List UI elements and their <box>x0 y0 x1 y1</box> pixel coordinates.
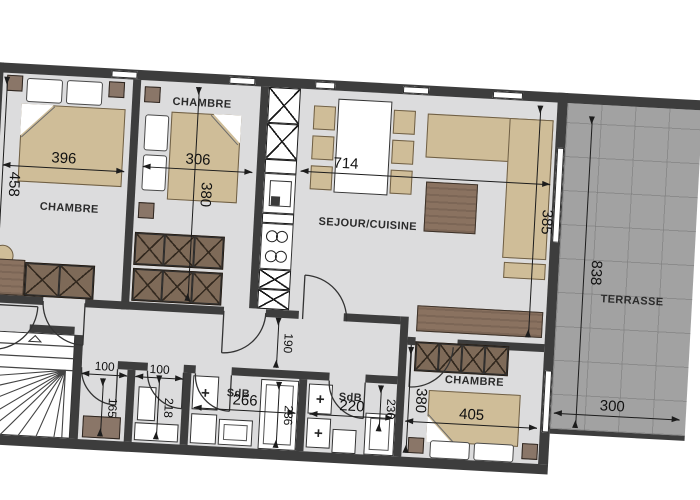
stairs <box>0 330 75 438</box>
dining-chair <box>393 110 416 135</box>
dining-chair <box>310 165 333 190</box>
window-north-3 <box>315 81 335 89</box>
washbasin-sdb1 <box>218 419 253 447</box>
wardrobe-chambre1 <box>23 262 95 300</box>
wardrobe-chambre2-top <box>133 232 225 270</box>
closet2-shelf <box>137 386 157 421</box>
bed-chambre1 <box>18 104 126 188</box>
pillow <box>143 114 169 151</box>
dining-chair <box>391 140 414 165</box>
nightstand <box>108 81 125 98</box>
washbasin-sdb2 <box>331 429 356 454</box>
nightstand <box>407 437 424 454</box>
pillow <box>429 440 470 460</box>
window-north-2 <box>229 76 255 84</box>
window-north-4 <box>403 86 429 94</box>
washer: + <box>306 417 332 448</box>
window-north-1 <box>111 70 137 78</box>
wall-hall-north-a <box>266 309 299 319</box>
dining-chair <box>389 170 412 195</box>
kitchen-tall-cabinet <box>265 123 299 161</box>
kitchen-base-cabinet <box>258 269 291 291</box>
dining-chair <box>311 135 334 160</box>
nightstand <box>138 202 155 219</box>
kitchen-base-cabinet <box>257 289 290 311</box>
sofa-ottoman <box>503 262 546 280</box>
sofa-right <box>502 118 554 260</box>
floor-plan: + + + CHAMBRE CHAMBRE SEJOUR/CUISINE CHA… <box>0 62 700 482</box>
terrace-floor <box>550 103 700 436</box>
wall-corridor-south-e <box>365 375 397 385</box>
pillow <box>66 80 103 106</box>
kitchen-sink <box>262 173 296 215</box>
bathroom-cabinet <box>190 413 218 444</box>
pillow <box>141 154 167 191</box>
kitchen-tall-cabinet <box>267 87 301 125</box>
wardrobe-chambre3 <box>414 341 509 376</box>
desk <box>0 258 25 296</box>
dining-table <box>333 99 392 196</box>
wardrobe-chambre2-bottom <box>131 268 223 306</box>
pillow <box>26 78 63 104</box>
pillow <box>473 443 514 463</box>
nightstand <box>521 443 538 460</box>
cooktop <box>259 223 293 271</box>
dining-chair <box>313 105 336 130</box>
